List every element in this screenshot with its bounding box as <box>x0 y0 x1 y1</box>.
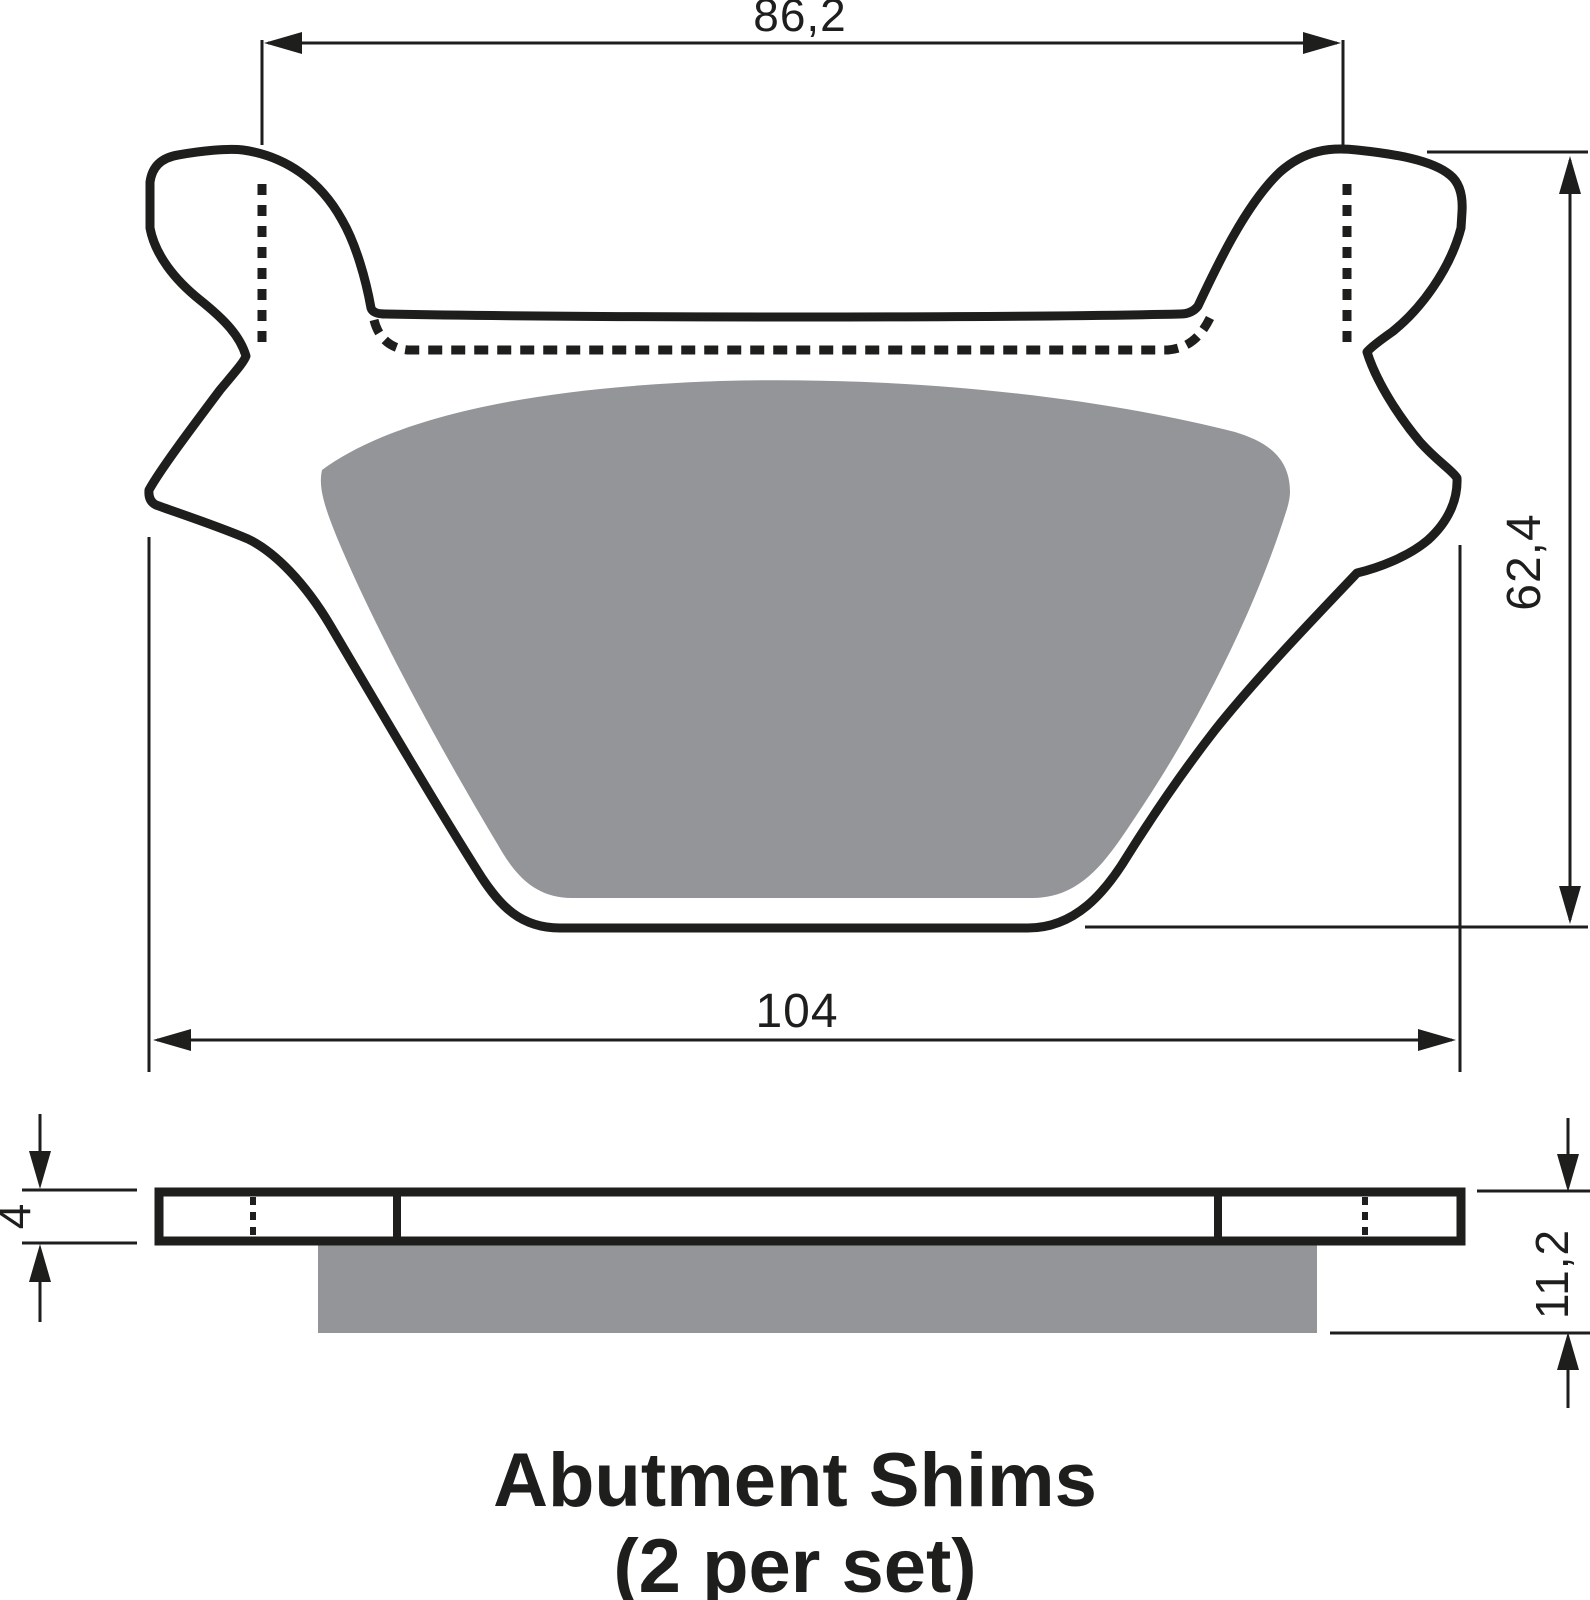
dim-label-11-2: 11,2 <box>1526 1229 1578 1319</box>
dim-label-4: 4 <box>0 1203 40 1230</box>
title-line-1: Abutment Shims <box>493 1438 1097 1523</box>
dim-label-104: 104 <box>755 985 838 1038</box>
technical-drawing-page: 86,2 104 62,4 4 11,2 Abutment Shims (2 p… <box>0 0 1590 1600</box>
backing-plate-bar <box>159 1192 1461 1241</box>
dim-label-86-2: 86,2 <box>753 0 847 41</box>
title-line-2: (2 per set) <box>613 1524 976 1600</box>
side-view <box>159 1188 1461 1333</box>
friction-material-side <box>318 1245 1317 1333</box>
drawing-canvas: 86,2 104 62,4 4 11,2 Abutment Shims (2 p… <box>0 0 1590 1600</box>
dim-label-62-4: 62,4 <box>1498 513 1551 610</box>
